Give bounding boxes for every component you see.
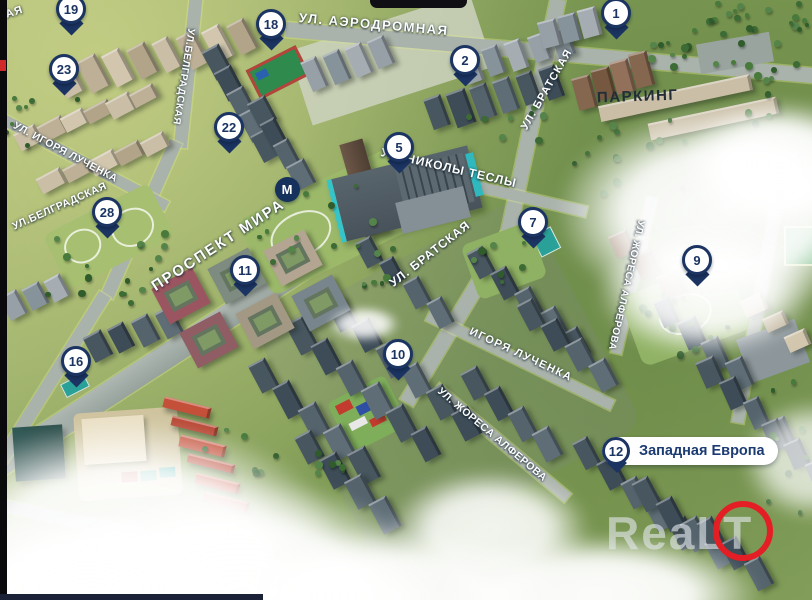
marker-number: 11 <box>230 255 260 285</box>
map-marker-1[interactable]: 1 <box>601 0 631 42</box>
callout-label: Западная Европа <box>630 443 778 459</box>
map-marker-7[interactable]: 7 <box>518 207 548 251</box>
marker-number: 2 <box>450 45 480 75</box>
map-marker-5[interactable]: 5 <box>384 132 414 176</box>
map-marker-12-callout[interactable]: 12 Западная Европа <box>602 437 778 465</box>
map-marker-18[interactable]: 18 <box>256 9 286 53</box>
map-marker-28[interactable]: 28 <box>92 197 122 241</box>
marker-number: 1 <box>601 0 631 28</box>
map-marker-10[interactable]: 10 <box>383 339 413 383</box>
marker-number: 23 <box>49 54 79 84</box>
marker-number: 19 <box>56 0 86 24</box>
metro-icon[interactable]: М <box>275 177 300 202</box>
map-marker-9[interactable]: 9 <box>682 245 712 289</box>
bottom-edge-bar <box>0 594 263 600</box>
map-marker-22[interactable]: 22 <box>214 112 244 156</box>
marker-number: 18 <box>256 9 286 39</box>
map-marker-23[interactable]: 23 <box>49 54 79 98</box>
marker-number: 28 <box>92 197 122 227</box>
marker-number: 12 <box>602 437 630 465</box>
marker-number: 5 <box>384 132 414 162</box>
left-edge-red-mark <box>0 60 6 71</box>
marker-number: 10 <box>383 339 413 369</box>
marker-number: 7 <box>518 207 548 237</box>
marker-number: 22 <box>214 112 244 142</box>
map-marker-11[interactable]: 11 <box>230 255 260 299</box>
map-marker-16[interactable]: 16 <box>61 346 91 390</box>
map-marker-2[interactable]: 2 <box>450 45 480 89</box>
map-canvas[interactable]: АЯУЛ. АЭРОДРОМНАЯУЛ.БЕЛГРАДСКАЯУЛ. ИГОРЯ… <box>0 0 812 600</box>
marker-number: 16 <box>61 346 91 376</box>
marker-number: 9 <box>682 245 712 275</box>
map-marker-19[interactable]: 19 <box>56 0 86 38</box>
realt-logo-ring <box>713 501 773 561</box>
left-edge-bar <box>0 0 7 600</box>
top-edge-pill <box>370 0 467 8</box>
